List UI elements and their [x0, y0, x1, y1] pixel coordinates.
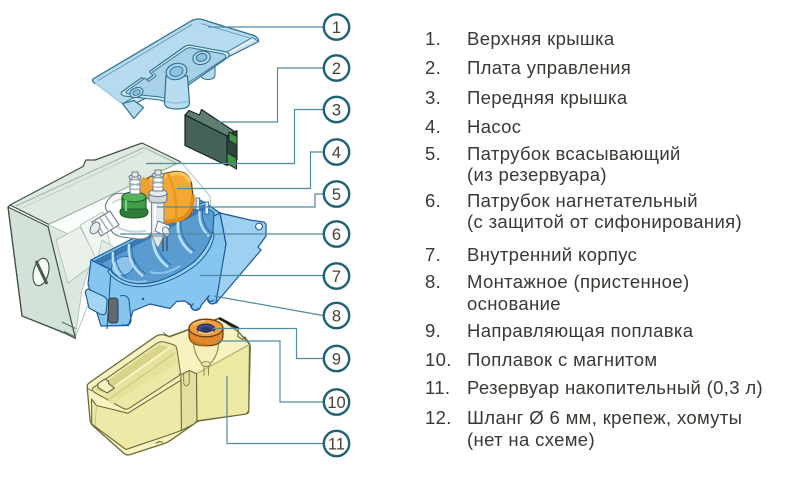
svg-text:3: 3 [332, 101, 341, 119]
svg-text:11: 11 [328, 435, 345, 453]
svg-text:4: 4 [332, 144, 341, 162]
svg-text:9: 9 [332, 350, 341, 368]
svg-text:7: 7 [332, 268, 341, 286]
svg-text:2: 2 [332, 60, 341, 78]
svg-text:10: 10 [327, 394, 345, 412]
svg-text:8: 8 [332, 307, 341, 325]
svg-text:6: 6 [332, 226, 341, 244]
svg-text:5: 5 [332, 186, 341, 204]
svg-text:1: 1 [332, 19, 341, 37]
